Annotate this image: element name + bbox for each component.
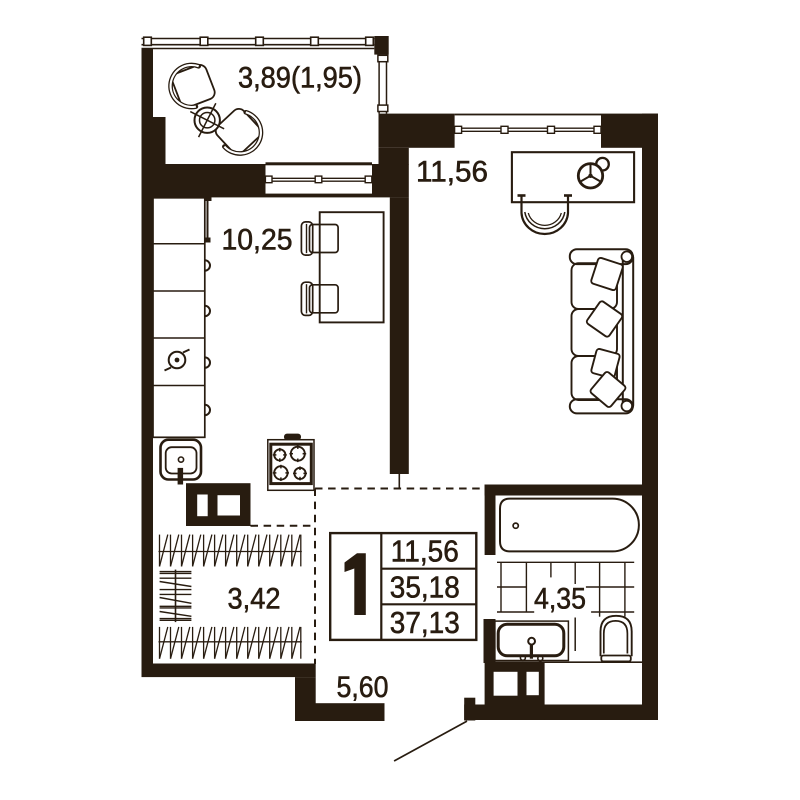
svg-text:5,60: 5,60 [337,671,389,704]
svg-text:10,25: 10,25 [222,224,293,257]
svg-text:3,89(1,95): 3,89(1,95) [238,62,362,95]
svg-text:11,56: 11,56 [416,156,488,189]
svg-text:4,35: 4,35 [534,583,586,616]
svg-text:35,18: 35,18 [390,570,460,605]
svg-text:3,42: 3,42 [228,583,281,616]
svg-text:11,56: 11,56 [391,534,459,569]
svg-text:37,13: 37,13 [390,605,460,640]
